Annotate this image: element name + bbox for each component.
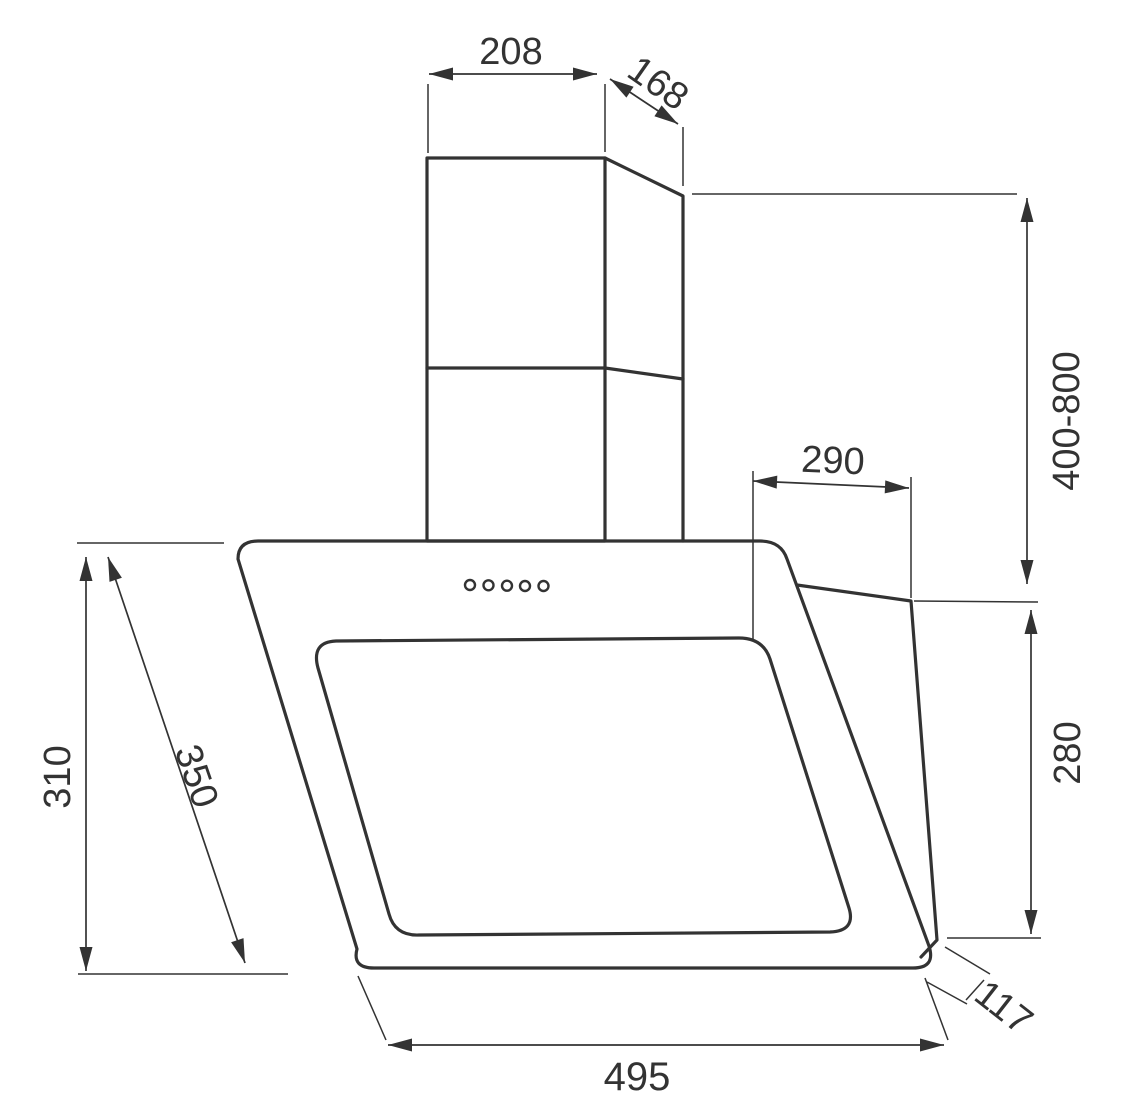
arrowhead [573,68,597,81]
technical-drawing: 208 168 400-800 290 280 [0,0,1133,1116]
control-button-1 [465,580,475,590]
extension-line [914,601,1038,602]
arrowhead [80,557,93,581]
dimension-label: 117 [967,973,1041,1043]
control-button-2 [484,580,494,590]
dimension-label: 280 [1047,721,1089,784]
arrowhead [108,557,122,582]
dimension-body-height: 310 [37,543,288,974]
dimension-label: 400-800 [1046,351,1088,490]
dimension-body-top-depth: 290 [753,439,911,641]
arrowhead [1021,198,1034,222]
arrowhead [80,947,93,971]
arrowhead [1025,910,1038,934]
extension-line [358,976,386,1040]
arrowhead [753,476,777,489]
chimney-front-face [427,158,605,541]
glass-panel-inner-edge [316,638,850,935]
arrowhead [388,1039,412,1052]
chimney [427,158,683,541]
arrowhead [1025,610,1038,634]
dimension-front-panel-length: 350 [108,557,245,963]
dimension-chimney-width: 208 [428,31,605,153]
hood-body [238,541,937,968]
chimney-telescopic-joint-side [605,368,683,379]
arrowhead [429,68,453,81]
dimension-label: 310 [37,745,79,808]
dimension-body-rear-height: 280 [947,610,1089,938]
dimension-body-width: 495 [358,976,948,1099]
control-button-3 [502,581,512,591]
arrowhead [231,938,245,963]
arrowhead [920,1039,944,1052]
control-button-4 [520,581,530,591]
dimension-label: 495 [604,1055,671,1099]
arrowhead [1021,560,1034,584]
dimension-label: 208 [479,31,542,73]
arrowhead [885,480,909,493]
control-button-5 [539,581,549,591]
extension-line [945,947,990,974]
control-buttons [465,580,549,591]
chimney-side-face [605,158,683,541]
dimension-label: 350 [166,740,226,814]
dimension-label: 290 [800,439,865,484]
dimension-label: 168 [620,48,696,119]
